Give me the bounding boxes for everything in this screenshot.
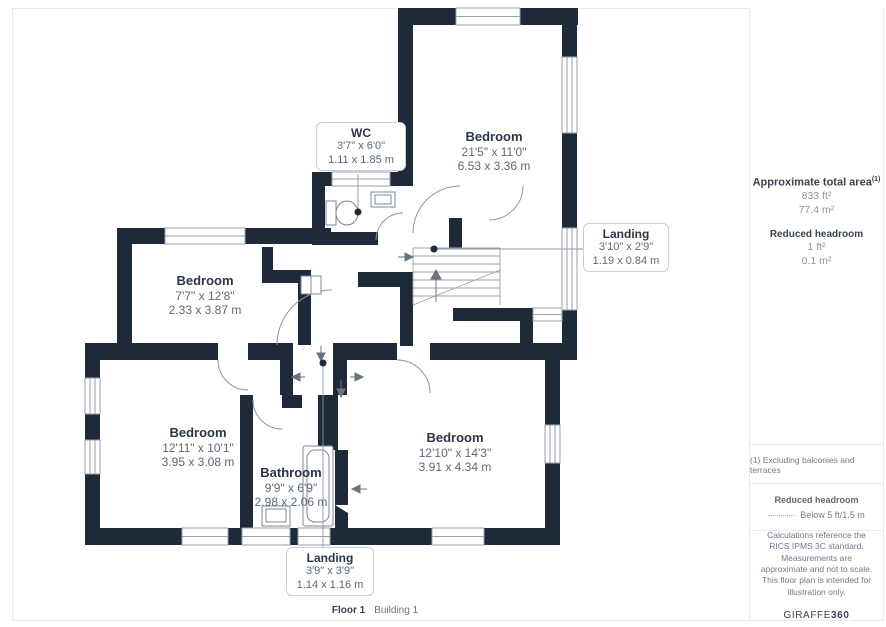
door-arc (218, 360, 248, 390)
window (85, 378, 100, 414)
brand-logo: GIRAFFE360 (783, 610, 849, 621)
brand-name: GIRAFFE (783, 610, 831, 621)
disclaimer-section: Calculations reference the RICS IPMS 3C … (750, 530, 883, 620)
window (562, 57, 577, 133)
brand-suffix: 360 (831, 610, 850, 621)
room-label-bedroom-bottom-right: Bedroom 12'10" x 14'3" 3.91 x 4.34 m (419, 431, 492, 474)
floor-plan-drawing (0, 0, 750, 627)
room-dim-metric: 3.91 x 4.34 m (419, 460, 492, 474)
stairs-icon (413, 248, 500, 305)
room-name: Bathroom (255, 466, 328, 481)
room-dim-metric: 2.98 x 2.06 m (255, 495, 328, 509)
room-name: Bedroom (162, 426, 235, 441)
disclaimer-text: Calculations reference the RICS IPMS 3C … (761, 530, 873, 599)
arrow-left-icon (292, 373, 305, 381)
total-area-title-text: Approximate total area (753, 177, 872, 189)
building-label: Building 1 (374, 605, 418, 616)
sink-icon (371, 192, 395, 207)
callout-dim-imperial: 3'9" x 3'9" (292, 565, 368, 578)
total-area-footnote-marker: (1) (872, 176, 881, 183)
floor-label: Floor 1 (332, 605, 365, 616)
callout-landing-lower: Landing 3'9" x 3'9" 1.14 x 1.16 m (286, 547, 374, 596)
total-area-metric: 77.4 m² (750, 204, 883, 218)
window (242, 528, 290, 545)
callout-name: Landing (589, 227, 663, 241)
window (332, 172, 390, 186)
room-dim-imperial: 12'11" x 10'1" (162, 441, 235, 455)
photo-point-dot (355, 209, 362, 216)
room-dim-metric: 2.33 x 3.87 m (169, 303, 242, 317)
callout-dim-imperial: 3'10" x 2'9" (589, 241, 663, 254)
footnote-text: (1) Excluding balconies and terraces (750, 455, 883, 475)
room-dim-imperial: 12'10" x 14'3" (419, 446, 492, 460)
arrow-down-icon (317, 346, 325, 361)
callout-landing-upper: Landing 3'10" x 2'9" 1.19 x 0.84 m (583, 223, 669, 272)
callout-dim-metric: 1.11 x 1.85 m (322, 154, 400, 167)
window (432, 528, 484, 545)
reduced-headroom-metric: 0.1 m² (750, 255, 883, 269)
door-arc (489, 186, 523, 220)
room-dim-metric: 6.53 x 3.36 m (458, 159, 531, 173)
photo-point-dot (431, 246, 438, 253)
reduced-headroom-line-icon (768, 515, 794, 516)
cabinet-icon (301, 276, 321, 294)
callout-dim-imperial: 3'7" x 6'0" (322, 140, 400, 153)
room-name: Bedroom (169, 274, 242, 289)
footnote-section: (1) Excluding balconies and terraces (750, 444, 883, 484)
window (533, 308, 562, 321)
reduced-headroom-title: Reduced headroom (750, 228, 883, 241)
arrow-right-icon (398, 253, 413, 261)
total-area-title: Approximate total area(1) (750, 175, 883, 190)
callout-dim-metric: 1.19 x 0.84 m (589, 255, 663, 268)
room-label-bedroom-mid-left: Bedroom 7'7" x 12'8" 2.33 x 3.87 m (169, 274, 242, 317)
window (165, 228, 245, 244)
callout-name: Landing (292, 551, 368, 565)
photo-point-dot (320, 360, 327, 367)
legend-row: Below 5 ft/1.5 m (768, 510, 865, 520)
arrow-right-icon (350, 373, 363, 381)
door-arc (376, 213, 403, 240)
room-dim-imperial: 7'7" x 12'8" (169, 289, 242, 303)
callout-wc: WC 3'7" x 6'0" 1.11 x 1.85 m (316, 122, 406, 171)
callout-dim-metric: 1.14 x 1.16 m (292, 579, 368, 592)
reduced-headroom-imperial: 1 ft² (750, 241, 883, 255)
toilet-icon (326, 201, 358, 225)
room-name: Bedroom (419, 431, 492, 446)
callout-name: WC (322, 126, 400, 140)
info-sidebar: Approximate total area(1) 833 ft² 77.4 m… (749, 8, 883, 619)
door-arc (397, 360, 430, 393)
room-label-bedroom-top: Bedroom 21'5" x 11'0" 6.53 x 3.36 m (458, 130, 531, 173)
legend-title: Reduced headroom (774, 495, 858, 505)
arrow-left-icon (352, 485, 367, 493)
window (298, 528, 330, 545)
room-label-bedroom-bottom-left: Bedroom 12'11" x 10'1" 3.95 x 3.08 m (162, 426, 235, 469)
window (545, 425, 560, 463)
room-label-bathroom: Bathroom 9'9" x 6'9" 2.98 x 2.06 m (255, 466, 328, 509)
legend-label: Below 5 ft/1.5 m (800, 510, 865, 520)
room-dim-imperial: 9'9" x 6'9" (255, 481, 328, 495)
area-summary: Approximate total area(1) 833 ft² 77.4 m… (750, 175, 883, 268)
window (562, 228, 577, 310)
total-area-imperial: 833 ft² (750, 190, 883, 204)
room-dim-imperial: 21'5" x 11'0" (458, 145, 531, 159)
window (456, 8, 520, 25)
room-name: Bedroom (458, 130, 531, 145)
door-arcs (218, 186, 523, 429)
window (182, 528, 228, 545)
legend-section: Reduced headroom Below 5 ft/1.5 m (750, 483, 883, 531)
plan-caption: Floor 1Building 1 (295, 605, 455, 616)
door-arc (253, 400, 282, 429)
window (85, 440, 100, 474)
room-dim-metric: 3.95 x 3.08 m (162, 455, 235, 469)
